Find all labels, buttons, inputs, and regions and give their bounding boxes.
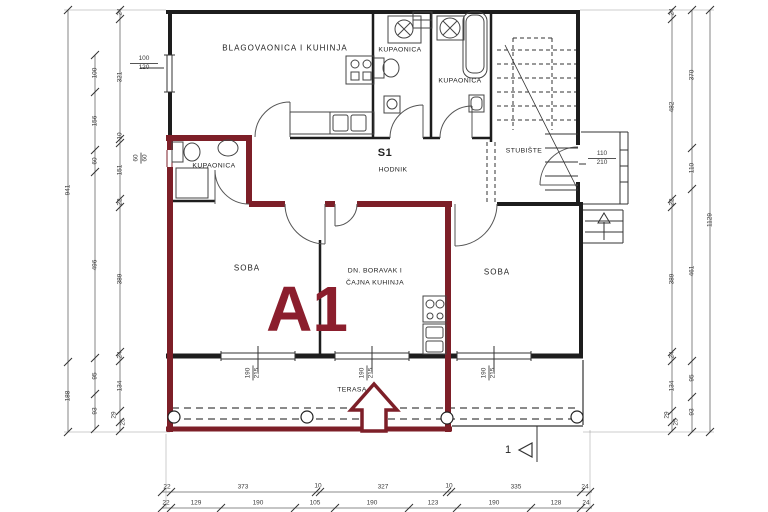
toilet-icon xyxy=(469,95,484,112)
floor-plan: BLAGOVAONICA I KUHINJA KUPAONICA KUPAONI… xyxy=(0,0,768,512)
dim-label: 25 xyxy=(673,418,680,425)
dim-label: 22 xyxy=(162,500,169,507)
dim-label: 95 xyxy=(689,374,696,381)
dim-label: 335 xyxy=(511,484,522,491)
section-marker xyxy=(519,426,537,462)
dim-label: 95 xyxy=(92,372,99,379)
dim-label: 93 xyxy=(92,407,99,414)
window-size-left-small: 60 60 xyxy=(133,152,150,163)
room-label-dining-kitchen: BLAGOVAONICA I KUHINJA xyxy=(222,44,347,53)
dim-label: 110 xyxy=(689,163,696,173)
windows xyxy=(140,55,586,372)
dimension-chain-lines xyxy=(64,10,714,508)
dim-label: 24 xyxy=(117,8,124,15)
dim-label: 24 xyxy=(669,8,676,15)
room-label-staircase: STUBIŠTE xyxy=(504,148,544,155)
dim-label: 10 xyxy=(117,132,124,139)
dim-label: 190 xyxy=(253,500,264,507)
dim-label: 123 xyxy=(428,500,439,507)
window-size-bottom-3: 190 215 xyxy=(481,366,498,381)
dim-label: 25 xyxy=(120,418,127,425)
dim-label: 22 xyxy=(163,484,170,491)
dim-label: 24 xyxy=(117,351,124,358)
dim-label: 373 xyxy=(238,484,249,491)
dim-label: 151 xyxy=(117,165,124,176)
section-triangle-icon xyxy=(519,443,532,457)
terrace-right xyxy=(452,360,583,426)
dim-label: 24 xyxy=(669,351,676,358)
dim-label: 188 xyxy=(65,391,72,402)
bidet-icon xyxy=(384,96,400,113)
section-marker-number: 1 xyxy=(505,444,511,456)
dim-label: 128 xyxy=(551,500,562,507)
window-size-bottom-1: 190 215 xyxy=(245,366,262,381)
room-label-terrace: TERASA xyxy=(337,387,367,394)
toilet-icon xyxy=(172,142,200,162)
dim-label: 129 xyxy=(191,500,202,507)
dim-label: 29 xyxy=(111,411,118,418)
dim-label: 327 xyxy=(378,484,389,491)
right-shaft xyxy=(581,132,628,204)
kitchen-counter-sink-icon xyxy=(290,112,374,134)
dim-label: 10 xyxy=(445,483,452,490)
room-label-bathroom-a1: KUPAONICA xyxy=(192,163,235,170)
floor-plan-linework xyxy=(0,0,768,512)
dim-label: 1129 xyxy=(707,213,714,227)
room-label-hallway: HODNIK xyxy=(379,167,408,174)
room-label-hall-id: S1 xyxy=(378,147,392,159)
stove-icon xyxy=(346,56,374,84)
dim-label: 190 xyxy=(489,500,500,507)
dim-label: 156 xyxy=(92,116,99,127)
staircase-runs xyxy=(487,38,578,204)
dim-label: 389 xyxy=(669,274,676,285)
bathtub-icon xyxy=(463,12,487,78)
room-label-living-2: ČAJNA KUHINJA xyxy=(346,280,404,287)
dim-label: 29 xyxy=(664,411,671,418)
dim-label: 321 xyxy=(117,72,124,83)
dimension-ticks xyxy=(64,6,714,512)
dim-label: 22 xyxy=(669,198,676,205)
dim-label: 93 xyxy=(689,408,696,415)
washbasin-icon xyxy=(218,140,238,156)
dim-label: 389 xyxy=(117,274,124,285)
stove-icon xyxy=(423,296,446,322)
dim-label: 24 xyxy=(581,484,588,491)
unit-label-a1: A1 xyxy=(266,272,348,346)
room-label-bathroom-top2: KUPAONICA xyxy=(438,78,481,85)
window-size-bottom-2: 190 215 xyxy=(359,366,376,381)
dim-label: 24 xyxy=(582,500,589,507)
dim-label: 190 xyxy=(367,500,378,507)
kitchen-sink-icon xyxy=(423,324,446,354)
door-size-stair: 110 210 xyxy=(588,150,616,167)
dim-label: 105 xyxy=(310,500,321,507)
dim-label: 10 xyxy=(314,483,321,490)
vent-shaft-icon xyxy=(413,12,432,28)
window-size-left-top: 100 120 xyxy=(130,55,158,72)
dim-label: 134 xyxy=(117,381,124,392)
shower-icon xyxy=(176,168,208,198)
toilet-icon xyxy=(374,58,399,78)
dim-label: 100 xyxy=(92,68,99,79)
room-label-room-right: SOBA xyxy=(484,268,510,277)
dim-label: 941 xyxy=(65,185,72,196)
exterior-stair xyxy=(583,210,623,243)
washbasin-icon xyxy=(437,16,464,40)
dim-label: 370 xyxy=(689,70,696,81)
room-label-living-1: DN. BORAVAK I xyxy=(348,268,402,275)
dim-label: 22 xyxy=(117,198,124,205)
dim-label: 496 xyxy=(92,260,99,271)
door-swings xyxy=(215,102,578,246)
dim-label: 461 xyxy=(689,266,696,277)
dim-label: 134 xyxy=(669,381,676,392)
dim-label: 482 xyxy=(669,102,676,113)
room-label-bathroom-top1: KUPAONICA xyxy=(378,47,421,54)
room-label-room-left: SOBA xyxy=(234,264,260,273)
dim-label: 60 xyxy=(92,157,99,164)
